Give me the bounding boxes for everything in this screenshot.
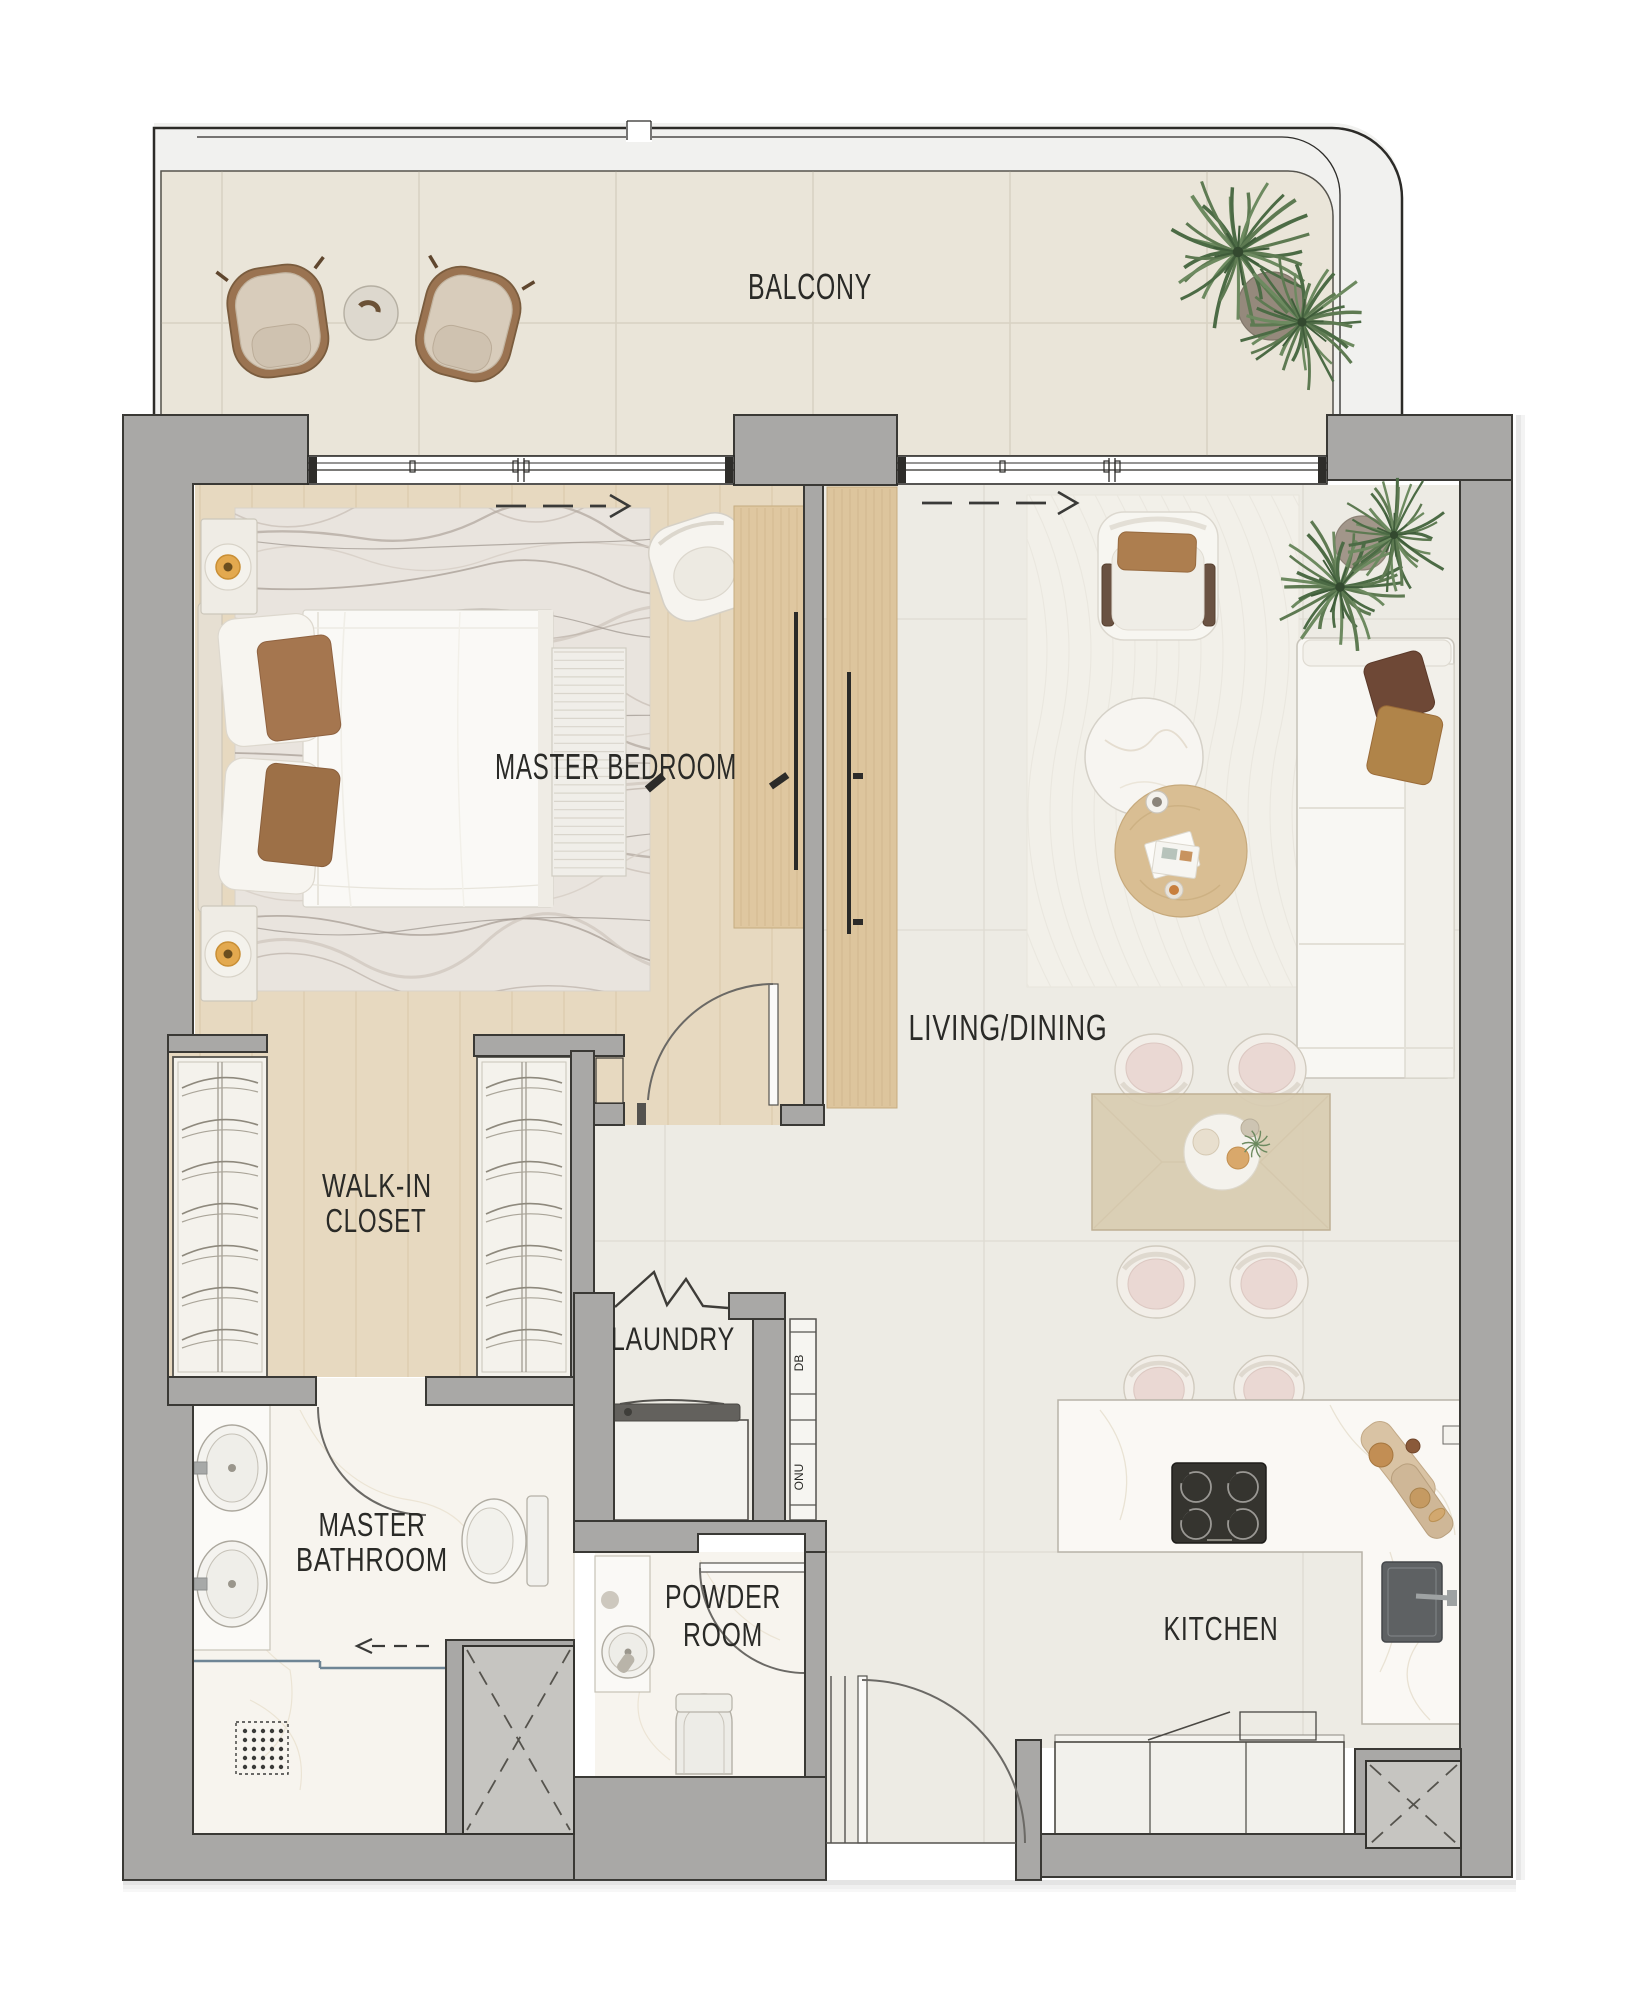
- svg-text:ROOM: ROOM: [683, 1616, 763, 1653]
- svg-text:CLOSET: CLOSET: [326, 1202, 427, 1239]
- svg-text:KITCHEN: KITCHEN: [1164, 1610, 1279, 1647]
- svg-text:DB: DB: [792, 1355, 806, 1372]
- svg-text:MASTER BEDROOM: MASTER BEDROOM: [495, 746, 737, 787]
- svg-text:BALCONY: BALCONY: [748, 266, 872, 307]
- svg-text:BATHROOM: BATHROOM: [296, 1541, 448, 1578]
- svg-text:WALK-IN: WALK-IN: [322, 1167, 432, 1204]
- svg-text:LAUNDRY: LAUNDRY: [611, 1321, 735, 1357]
- svg-text:MASTER: MASTER: [319, 1506, 426, 1543]
- svg-text:LIVING/DINING: LIVING/DINING: [909, 1007, 1108, 1048]
- svg-text:ONU: ONU: [792, 1464, 806, 1491]
- svg-text:POWDER: POWDER: [665, 1578, 781, 1615]
